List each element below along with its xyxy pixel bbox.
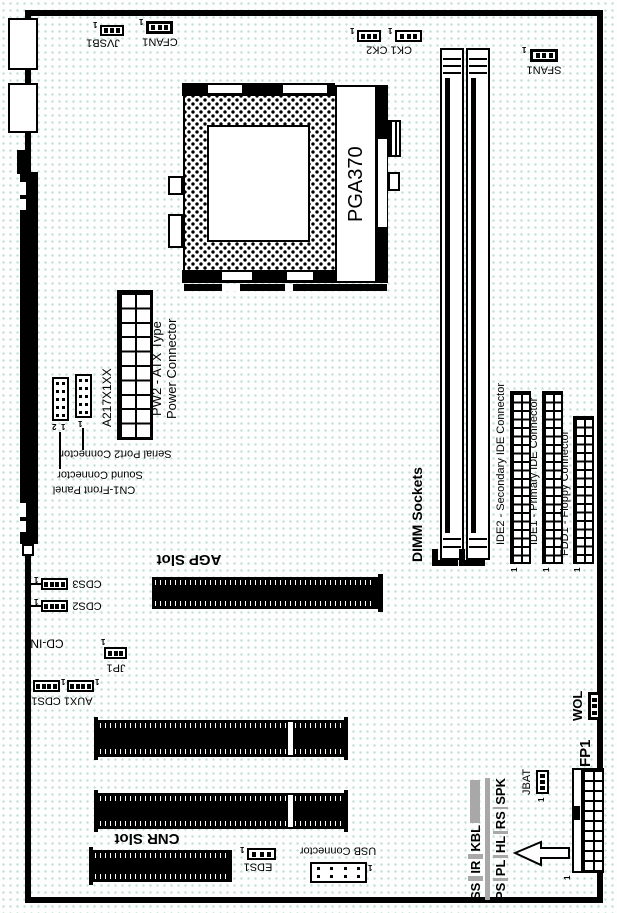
ck1-connector	[395, 30, 422, 42]
pw2-label-line2: Power Connector	[164, 298, 180, 440]
pin-name: HL	[493, 836, 508, 853]
pin1-marker: 1	[368, 863, 372, 871]
fdd1-header	[573, 416, 594, 564]
cpu-socket-tab-right	[388, 120, 401, 157]
pin-name: KBL	[468, 825, 483, 852]
io-bar-notch	[20, 199, 26, 210]
pci-slot-1-bracket	[344, 717, 348, 760]
pointer-arrow-icon	[513, 839, 571, 868]
pin-name: PL	[493, 860, 508, 877]
pin1-marker: 1	[93, 20, 97, 28]
cfan1-label: CFAN1	[140, 35, 180, 47]
pin1-marker: 1	[61, 422, 65, 430]
cnr-slot	[92, 850, 232, 882]
pci-slot-2	[97, 793, 344, 829]
cpu-socket-bottom-cutout	[222, 272, 252, 280]
cdin-bracket-line	[29, 582, 31, 682]
pci-slot-1-bracket	[94, 717, 98, 760]
fdd1-label: FDD1 - Floppy Connector	[559, 417, 573, 570]
pci-slot-2-bracket	[94, 790, 98, 832]
agp-slot-end-bracket	[378, 574, 383, 612]
pin-name: SPK	[493, 778, 508, 805]
pin1-marker: 1	[511, 564, 521, 575]
sound-connector-label: Sound Connector	[45, 468, 155, 480]
eds1-connector	[247, 848, 276, 860]
fp1-key-cell	[574, 806, 580, 820]
pin1-marker: 1	[538, 795, 548, 804]
pin1-marker: 1	[522, 45, 526, 53]
pin1-marker: 1	[388, 26, 392, 34]
io-bar-notch	[20, 521, 26, 532]
fp1-label: FP1	[577, 737, 599, 770]
pin1-marker: 1	[240, 845, 244, 853]
fp1-pin-names: SS IR KBL PS PL HL RS SPK	[467, 778, 514, 900]
eds1-label: EDS1	[237, 860, 279, 872]
io-connector-stem	[17, 150, 28, 174]
agp-slot-label: AGP Slot	[149, 551, 229, 567]
ide2-label: IDE2 - Secondary IDE Connector	[495, 358, 509, 570]
jp1-connector	[104, 647, 127, 659]
dimm-sockets-label: DIMM Sockets	[405, 456, 431, 574]
ide1-label: IDE1 - Primary IDE Connector	[528, 373, 542, 570]
cnr-slot-label: CNR Slot	[94, 830, 200, 846]
cpu-socket-bar-gap	[222, 284, 240, 291]
pw2-label-line1: PW2 - ATX Type	[149, 298, 165, 440]
pin2-marker: 2	[52, 422, 56, 430]
usb-connector-label: USB Connector	[292, 844, 384, 856]
cfan1-connector	[146, 21, 173, 34]
cds1-connector	[67, 680, 94, 692]
pin1-marker: 1	[543, 564, 553, 575]
pin1-marker: 1	[574, 564, 584, 575]
pin1-marker: 1	[61, 677, 65, 685]
wol-label: WOL	[570, 689, 587, 722]
cpu-socket-right-inset	[377, 138, 388, 228]
aux1-connector	[33, 680, 60, 692]
pin1-marker: 1	[34, 575, 38, 583]
cn1-front-panel-header	[52, 377, 69, 421]
pin1-marker: 1	[564, 871, 575, 884]
pin1-marker: 1	[78, 419, 82, 427]
ck2-connector	[357, 30, 381, 42]
wol-connector	[588, 692, 601, 720]
fp1-pin-row-1: SS IR KBL	[467, 778, 483, 900]
dimm1-latch-foot	[432, 560, 458, 566]
agp-slot	[152, 577, 378, 609]
dimm-socket-1	[440, 48, 464, 560]
jbat-connector	[536, 770, 549, 794]
pin-name: SS	[468, 883, 483, 900]
cds3-connector	[41, 578, 68, 590]
cpu-socket-tab-left	[168, 214, 183, 248]
jbat-label: JBAT	[521, 768, 535, 796]
pin1-marker: 1	[350, 26, 354, 34]
dimm-socket-2	[466, 48, 490, 560]
pga370-label: PGA370	[337, 87, 375, 281]
io-connector-bar	[20, 172, 38, 544]
pci-slot-1	[97, 720, 344, 757]
cds2-label: CDS2	[70, 599, 104, 611]
io-port-top	[8, 18, 38, 70]
usb-header	[310, 862, 367, 883]
cnr-slot-bracket	[89, 847, 93, 885]
pci-slot-2-bracket	[344, 790, 348, 832]
pin-name: RS	[493, 811, 508, 829]
aux1-cds1-label: AUX1 CDS1	[28, 694, 96, 706]
pin-name: PS	[493, 883, 508, 900]
pin1-marker: 1	[101, 637, 105, 645]
serial-port2-label: Serial Port2 Connector	[52, 447, 180, 459]
jvsb1-label: JVSB1	[80, 36, 126, 48]
cds3-label: CDS3	[70, 577, 104, 589]
io-port-second	[8, 83, 38, 133]
motherboard-diagram: 1 JVSB1 1 CFAN1 1 1 CK1 CK2 1 SFAN1 PGA3…	[0, 0, 617, 913]
atx-power-connector	[117, 290, 153, 440]
pin1-marker: 1	[34, 597, 38, 605]
cpu-socket-tab-left	[168, 176, 183, 195]
pin1-marker: 1	[139, 17, 143, 25]
pin-table-divider	[485, 778, 490, 900]
cpu-socket-bar-gap	[285, 284, 293, 291]
pin1-marker: 1	[95, 677, 99, 685]
dimm2-latch-foot	[459, 560, 485, 566]
cpu-socket-center	[207, 125, 310, 242]
cpu-socket-top-cutout	[283, 85, 327, 93]
sfan1-connector	[530, 49, 558, 62]
cds2-connector	[41, 600, 68, 612]
sfan1-label: SFAN1	[524, 63, 564, 75]
io-bar-notch	[20, 503, 26, 517]
cd-in-label: CD-IN	[28, 637, 66, 650]
cpu-socket-top-cutout	[208, 85, 242, 93]
a217x1xx-label: A217X1XX	[99, 356, 117, 440]
fp1-pin-row-2: PS PL HL RS SPK	[492, 778, 508, 900]
cpu-socket-tab-right	[388, 172, 400, 191]
ck1-ck2-label: CK1 CK2	[355, 43, 423, 55]
fp1-header-pins	[581, 770, 602, 871]
jvsb1-connector	[100, 25, 124, 36]
serial-port2-header	[75, 374, 92, 418]
io-bar-foot	[22, 544, 34, 556]
cn1-front-panel-label: CN1-Front Panel	[41, 483, 147, 495]
cpu-socket-label-strip: PGA370	[335, 85, 377, 283]
io-bar-notch	[20, 182, 26, 195]
cpu-socket-bottom-cutout	[287, 272, 313, 280]
pci-slot-1-key	[288, 722, 293, 755]
pin-name: IR	[468, 861, 483, 874]
jp1-label: JP1	[102, 661, 130, 673]
pci-slot-2-key	[288, 795, 293, 827]
